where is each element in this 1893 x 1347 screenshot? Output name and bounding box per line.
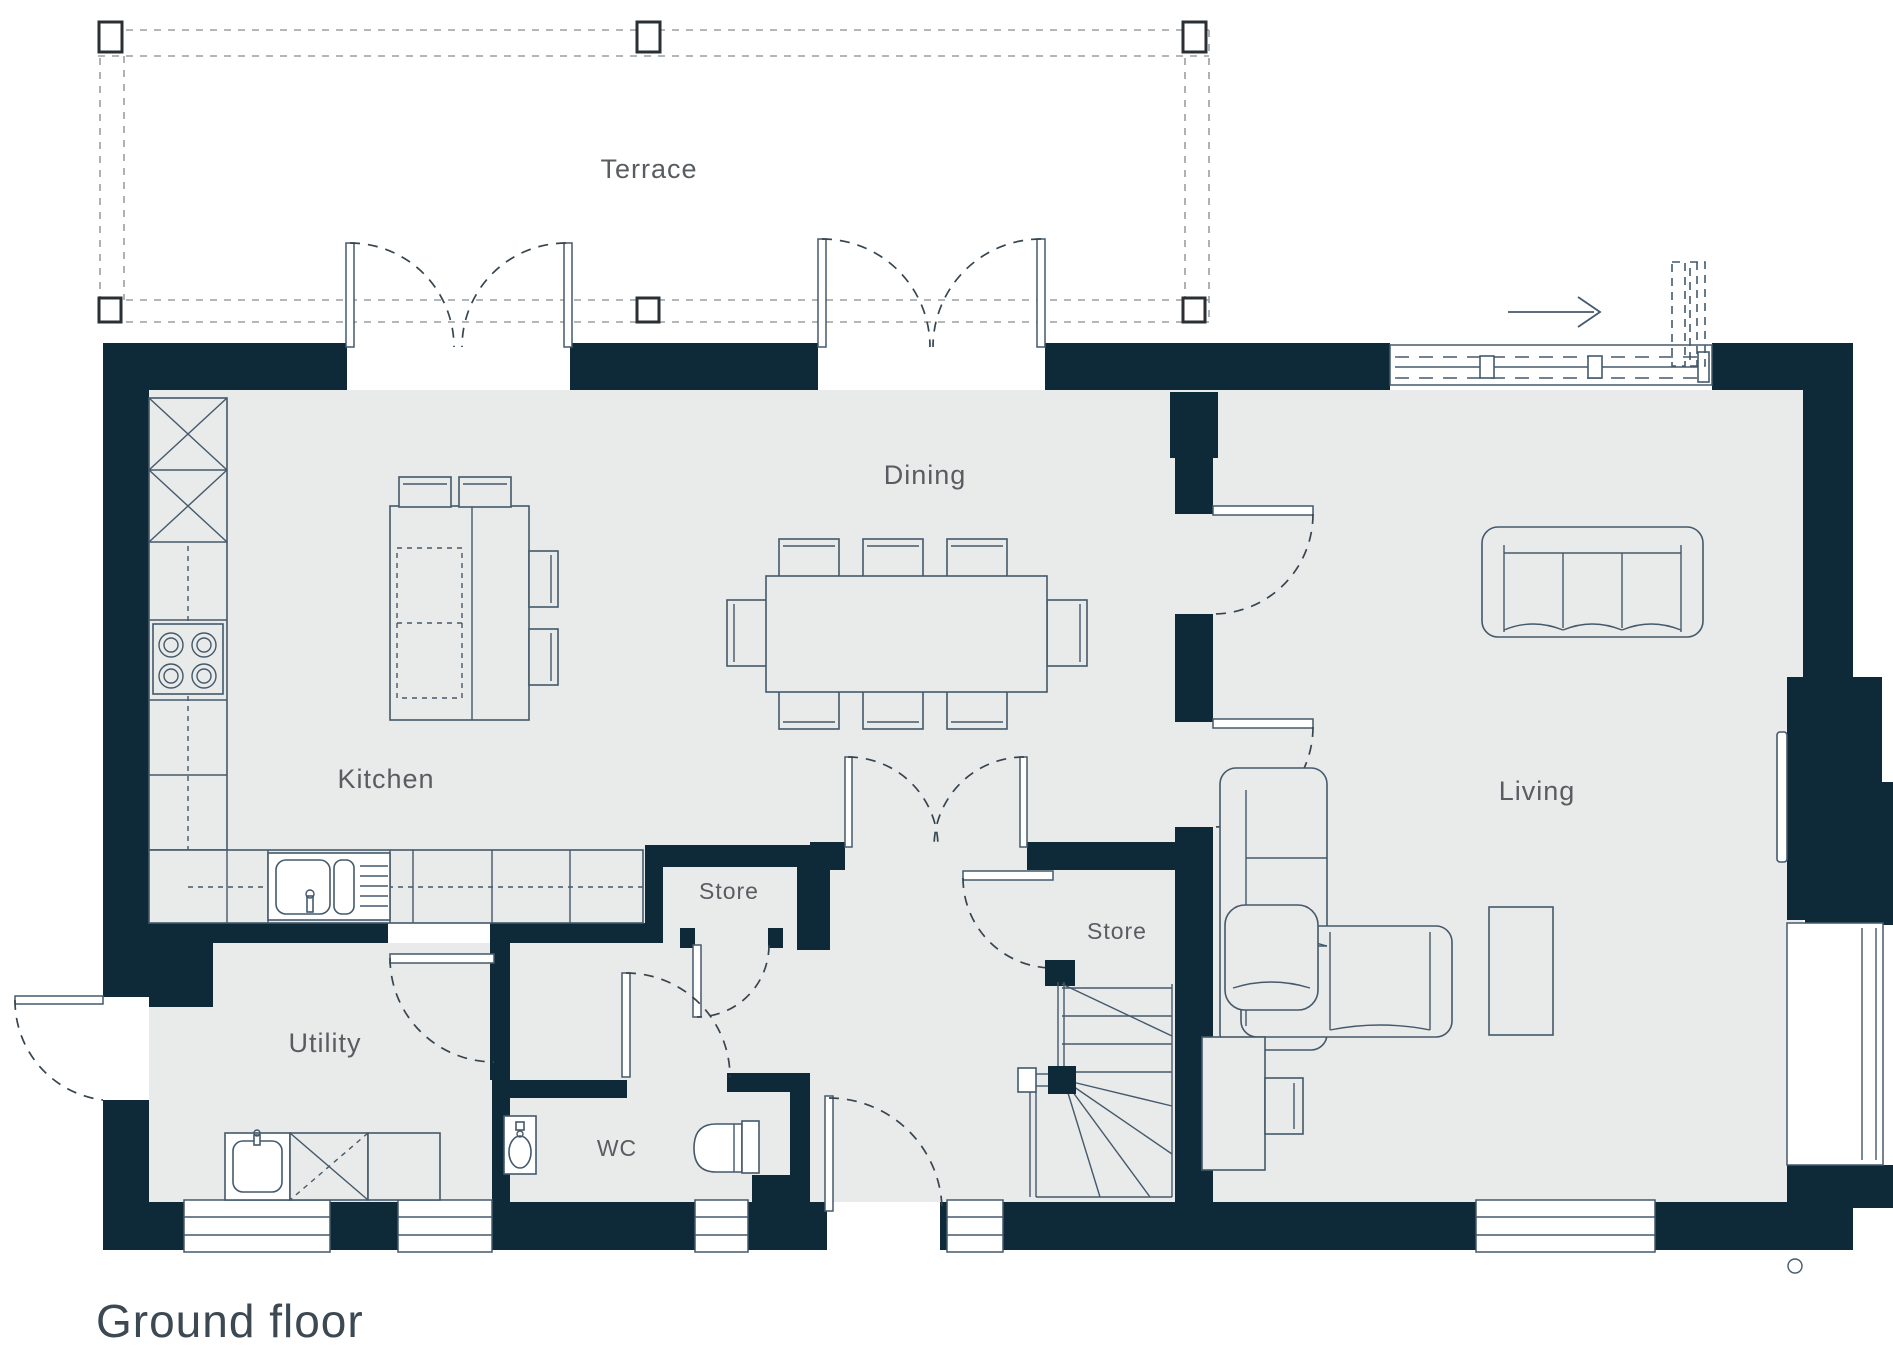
label-living: Living [1499,776,1576,806]
kitchen-french-doors [346,243,572,347]
lobby-window [398,1200,492,1252]
wc-window [695,1200,748,1252]
terrace-post-icon [637,298,659,322]
newel-post-icon [1048,1066,1076,1094]
toilet-icon [694,1121,759,1173]
dining-french-doors [818,239,1045,347]
label-wc: WC [597,1135,637,1161]
tv-icon [1777,732,1787,862]
living-sliding-door [1390,345,1712,385]
hob-icon [153,624,223,694]
label-store-stairs: Store [1087,918,1147,944]
label-dining: Dining [884,460,967,490]
handrail-post-icon [1018,1068,1036,1092]
utility-window [184,1200,330,1252]
label-utility: Utility [289,1028,362,1058]
kitchen-sink-icon [268,853,390,920]
terrace-post-icon [637,22,660,52]
soil-pipe-icon [1788,1259,1802,1273]
terrace-post-icon [1183,298,1205,322]
basin-icon [504,1116,536,1174]
utility-sink-icon [225,1130,290,1200]
sofa-icon [1482,527,1703,637]
appliance-icon [290,1133,440,1200]
label-kitchen: Kitchen [337,764,434,794]
page-title: Ground floor [96,1295,364,1347]
utility-external-door [15,996,103,1100]
living-window-south [1476,1200,1655,1252]
kitchen-island-icon [390,506,529,720]
terrace-post-icon [1183,22,1206,52]
ground-floor-plan: Terrace Dining Kitchen Living Store Stor… [0,0,1893,1347]
armchair-icon [1225,905,1318,1010]
living-window-east [1787,923,1883,1165]
hall-window [947,1200,1003,1252]
direction-arrow-icon [1508,297,1600,327]
dining-table-icon [766,576,1047,692]
label-store-hall: Store [699,878,759,904]
utility-fixtures [225,1130,440,1200]
floor-plan-svg: Terrace Dining Kitchen Living Store Stor… [0,0,1893,1347]
terrace-post-icon [99,22,122,52]
label-terrace: Terrace [600,154,697,184]
coffee-table-icon [1489,907,1553,1035]
terrace-post-icon [99,298,121,322]
